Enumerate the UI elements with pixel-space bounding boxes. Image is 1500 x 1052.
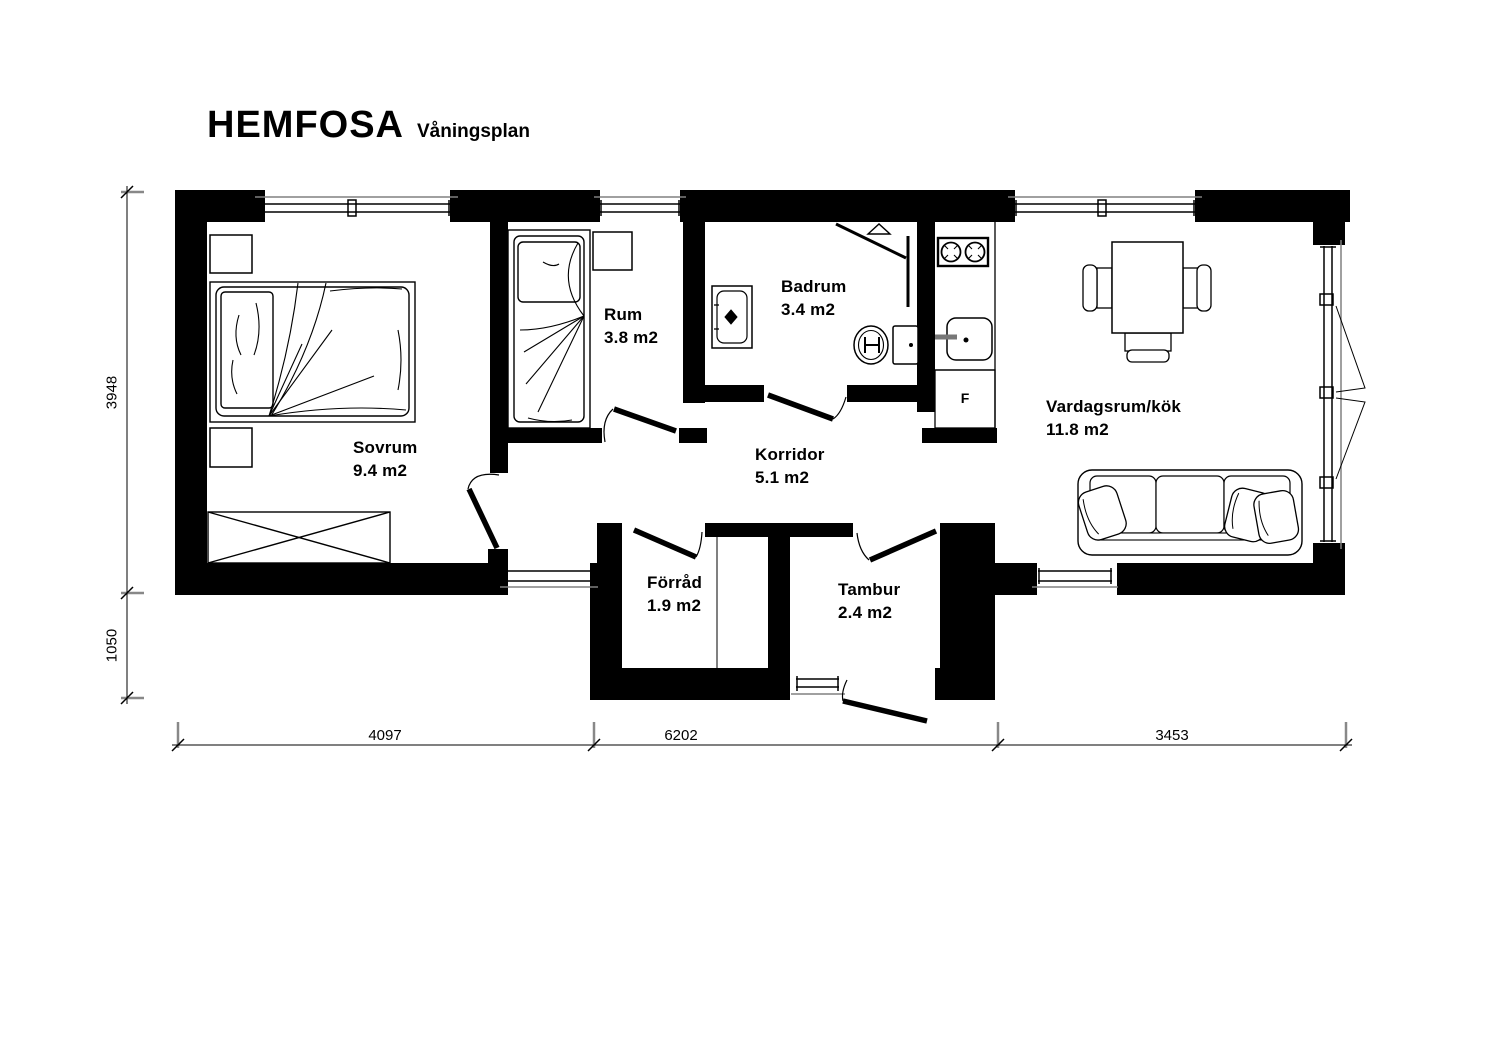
bed-double: [210, 282, 415, 422]
shower: [836, 224, 908, 307]
room-label-korridor: Korridor 5.1 m2: [755, 443, 825, 489]
dim-horizontal-middle: 6202: [631, 727, 731, 744]
window-sovrum: [263, 200, 450, 216]
room-name: Förråd: [647, 571, 702, 594]
dining-chair-left: [1097, 268, 1112, 308]
dining-table: [1112, 242, 1183, 333]
bathroom-sink: [712, 286, 752, 348]
kitchen-sink: [935, 318, 992, 360]
room-area: 3.4 m2: [781, 298, 846, 321]
room-name: Tambur: [838, 578, 900, 601]
door-tambur: [857, 531, 936, 560]
fridge-label: F: [950, 390, 980, 406]
dim-vertical-lower: 1050: [104, 611, 121, 681]
kitchen: [935, 222, 995, 443]
dining-set: [1083, 242, 1211, 362]
sofa: [1076, 470, 1302, 555]
room-label-tambur: Tambur 2.4 m2: [838, 578, 900, 624]
floorplan-drawing: [0, 0, 1500, 1052]
dim-vertical-upper: 3948: [104, 358, 121, 428]
room-area: 11.8 m2: [1046, 418, 1181, 441]
door-rum: [604, 409, 676, 442]
door-forrad: [634, 530, 702, 557]
dining-chair-bottom: [1125, 333, 1171, 351]
dining-chair-right: [1183, 268, 1198, 308]
window-rum: [600, 200, 680, 216]
window-tambur: [796, 676, 839, 691]
nightstand-bottom: [210, 428, 252, 467]
room-label-vardagsrum: Vardagsrum/kök 11.8 m2: [1046, 395, 1181, 441]
room-name: Vardagsrum/kök: [1046, 395, 1181, 418]
room-name: Rum: [604, 303, 658, 326]
room-label-forrad: Förråd 1.9 m2: [647, 571, 702, 617]
bed-single: [508, 230, 590, 428]
room-area: 2.4 m2: [838, 601, 900, 624]
room-name: Sovrum: [353, 436, 418, 459]
room-name: Korridor: [755, 443, 825, 466]
room-label-sovrum: Sovrum 9.4 m2: [353, 436, 418, 482]
room-label-rum: Rum 3.8 m2: [604, 303, 658, 349]
nightstand-top: [210, 235, 252, 273]
room-name: Badrum: [781, 275, 846, 298]
room-area: 5.1 m2: [755, 466, 825, 489]
drawing-title: HEMFOSA Våningsplan: [207, 104, 530, 147]
title-main: HEMFOSA: [207, 104, 404, 147]
window-vardagsrum: [1015, 200, 1195, 216]
door-entry: [843, 680, 928, 721]
floorplan-page: HEMFOSA Våningsplan Sovrum 9.4 m2 Rum 3.…: [0, 0, 1500, 1052]
toilet: [854, 326, 918, 364]
wardrobe: [208, 512, 390, 563]
room-label-badrum: Badrum 3.4 m2: [781, 275, 846, 321]
title-subtitle: Våningsplan: [417, 121, 530, 143]
table-rum: [593, 232, 632, 270]
door-badrum: [768, 395, 846, 419]
door-sovrum: [468, 474, 499, 548]
window-east: [1320, 246, 1365, 542]
stove: [938, 238, 988, 266]
window-sovrum-south: [506, 568, 592, 584]
window-vardagsrum-south: [1038, 568, 1112, 584]
room-area: 9.4 m2: [353, 459, 418, 482]
room-area: 3.8 m2: [604, 326, 658, 349]
dim-horizontal-right: 3453: [1122, 727, 1222, 744]
room-area: 1.9 m2: [647, 594, 702, 617]
dim-horizontal-left: 4097: [335, 727, 435, 744]
